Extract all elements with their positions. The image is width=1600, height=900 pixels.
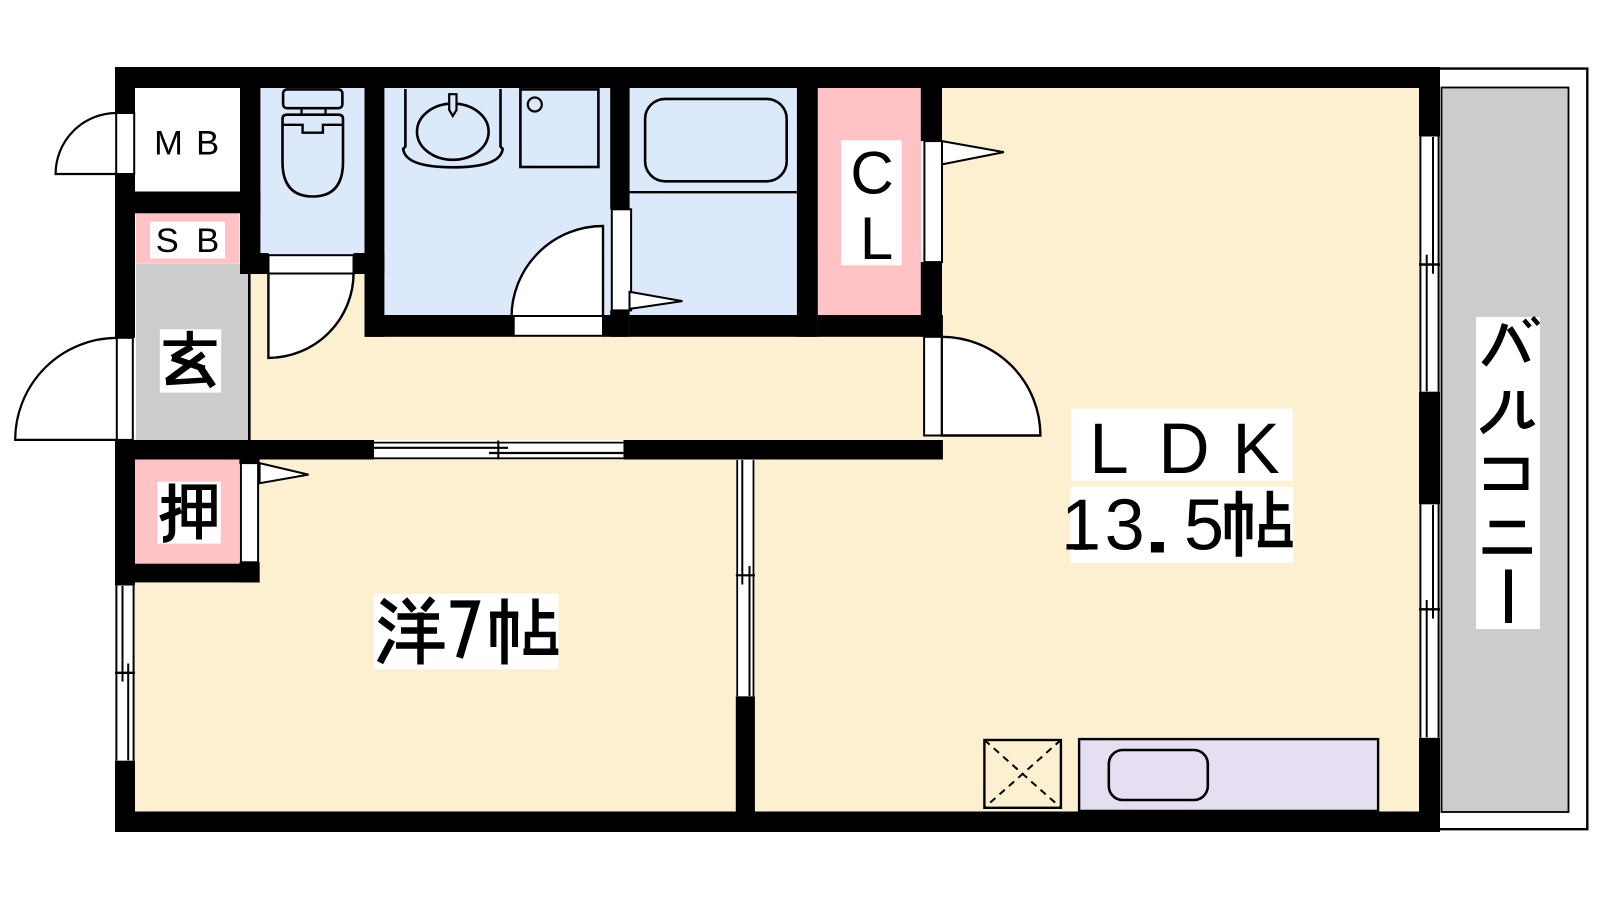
svg-text:S: S [156,222,179,260]
svg-text:D: D [1158,410,1209,489]
svg-text:B: B [196,125,219,163]
svg-text:1: 1 [1061,486,1101,566]
svg-text:C: C [850,140,893,207]
svg-text:K: K [1232,410,1279,489]
svg-text:M: M [154,125,183,163]
svg-text:L: L [1089,410,1129,489]
svg-text:L: L [860,205,893,272]
svg-text:5: 5 [1184,486,1224,566]
svg-text:3: 3 [1105,486,1145,566]
svg-text:B: B [196,222,219,260]
